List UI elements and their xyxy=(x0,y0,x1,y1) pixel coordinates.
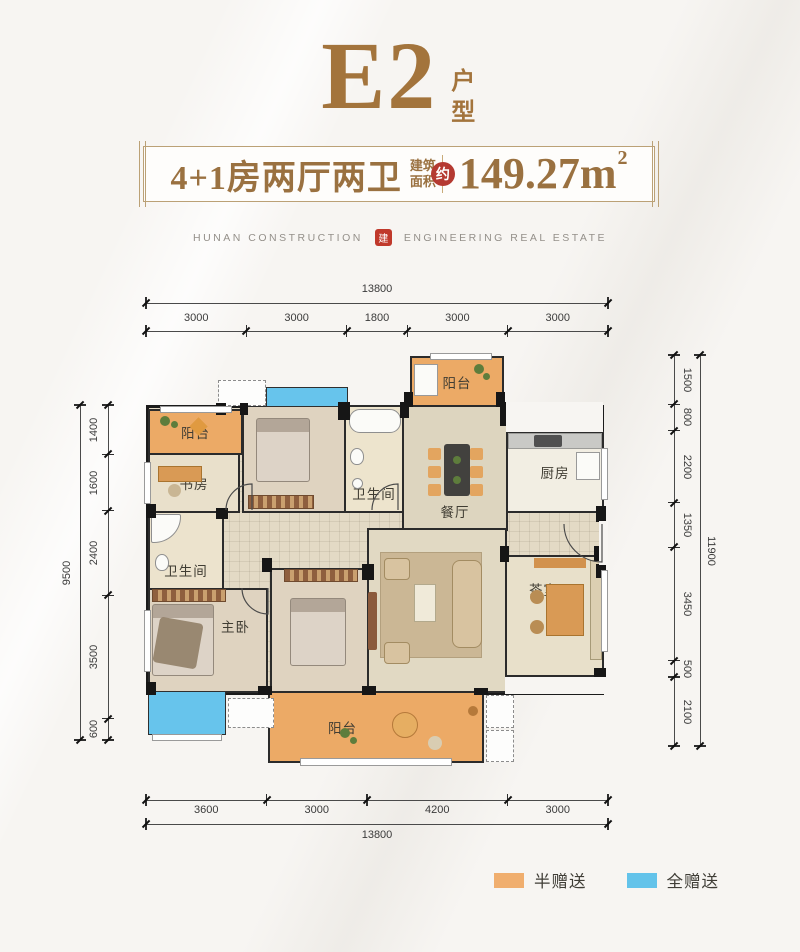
master-door-arc xyxy=(242,588,268,614)
door-arc-layer xyxy=(0,0,800,952)
bathroom-door-arc xyxy=(372,484,398,510)
entry-door-arc xyxy=(564,524,602,562)
bedroom-door-arc xyxy=(226,484,252,510)
